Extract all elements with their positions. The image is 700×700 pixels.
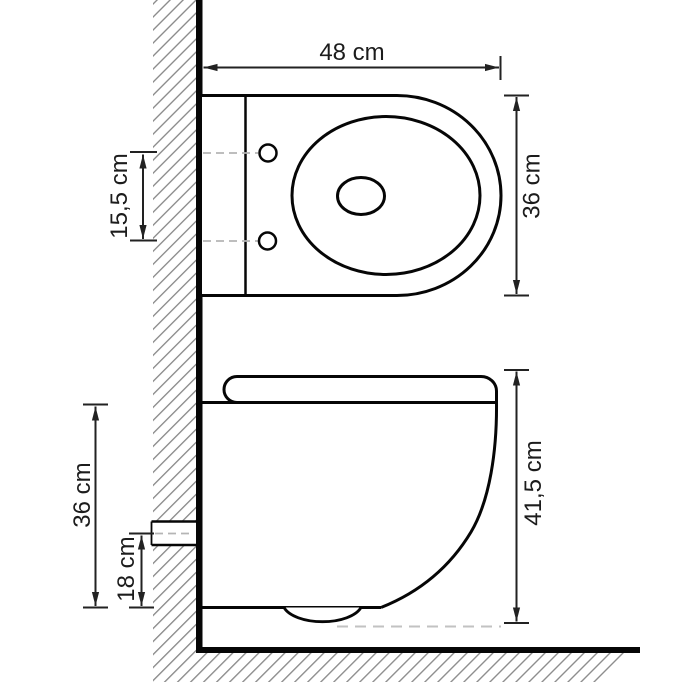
trap-bulge-curve (284, 608, 361, 622)
dimension-label-hole-spacing: 15,5 cm (106, 153, 133, 238)
dimension-36cm-top: 36 cm (504, 96, 546, 296)
dimension-label-outlet-height: 18 cm (113, 536, 140, 601)
top-view (202, 96, 501, 296)
floor-line (196, 647, 640, 653)
wall-line (196, 0, 203, 653)
technical-drawing-page: 48 cm 36 cm 15,5 cm 41,5 cm (0, 0, 700, 700)
dimension-15-5cm: 15,5 cm (106, 152, 157, 241)
dimension-label-seat-height: 36 cm (69, 462, 96, 527)
floor-hatch (196, 652, 634, 682)
dimension-label-side-height: 41,5 cm (520, 440, 547, 525)
dimension-label-top-depth: 36 cm (519, 153, 546, 218)
bowl-profile-curve (381, 403, 497, 608)
lid-profile (224, 377, 497, 403)
outlet-pipe (152, 522, 197, 546)
dimension-41-5cm: 41,5 cm (504, 370, 547, 623)
bowl-rim-ellipse (292, 117, 480, 275)
dimension-18cm: 18 cm (113, 534, 154, 608)
dimension-36cm-side: 36 cm (69, 405, 108, 608)
drain-ellipse (338, 178, 385, 215)
dimension-label-top-width: 48 cm (319, 39, 384, 66)
mounting-hole-top (260, 145, 277, 162)
wall-hatch (153, 0, 196, 682)
dimension-48cm: 48 cm (204, 39, 501, 80)
mounting-hole-bottom (259, 233, 276, 250)
side-view (202, 377, 501, 627)
toilet-dimension-diagram: 48 cm 36 cm 15,5 cm 41,5 cm (0, 0, 700, 700)
